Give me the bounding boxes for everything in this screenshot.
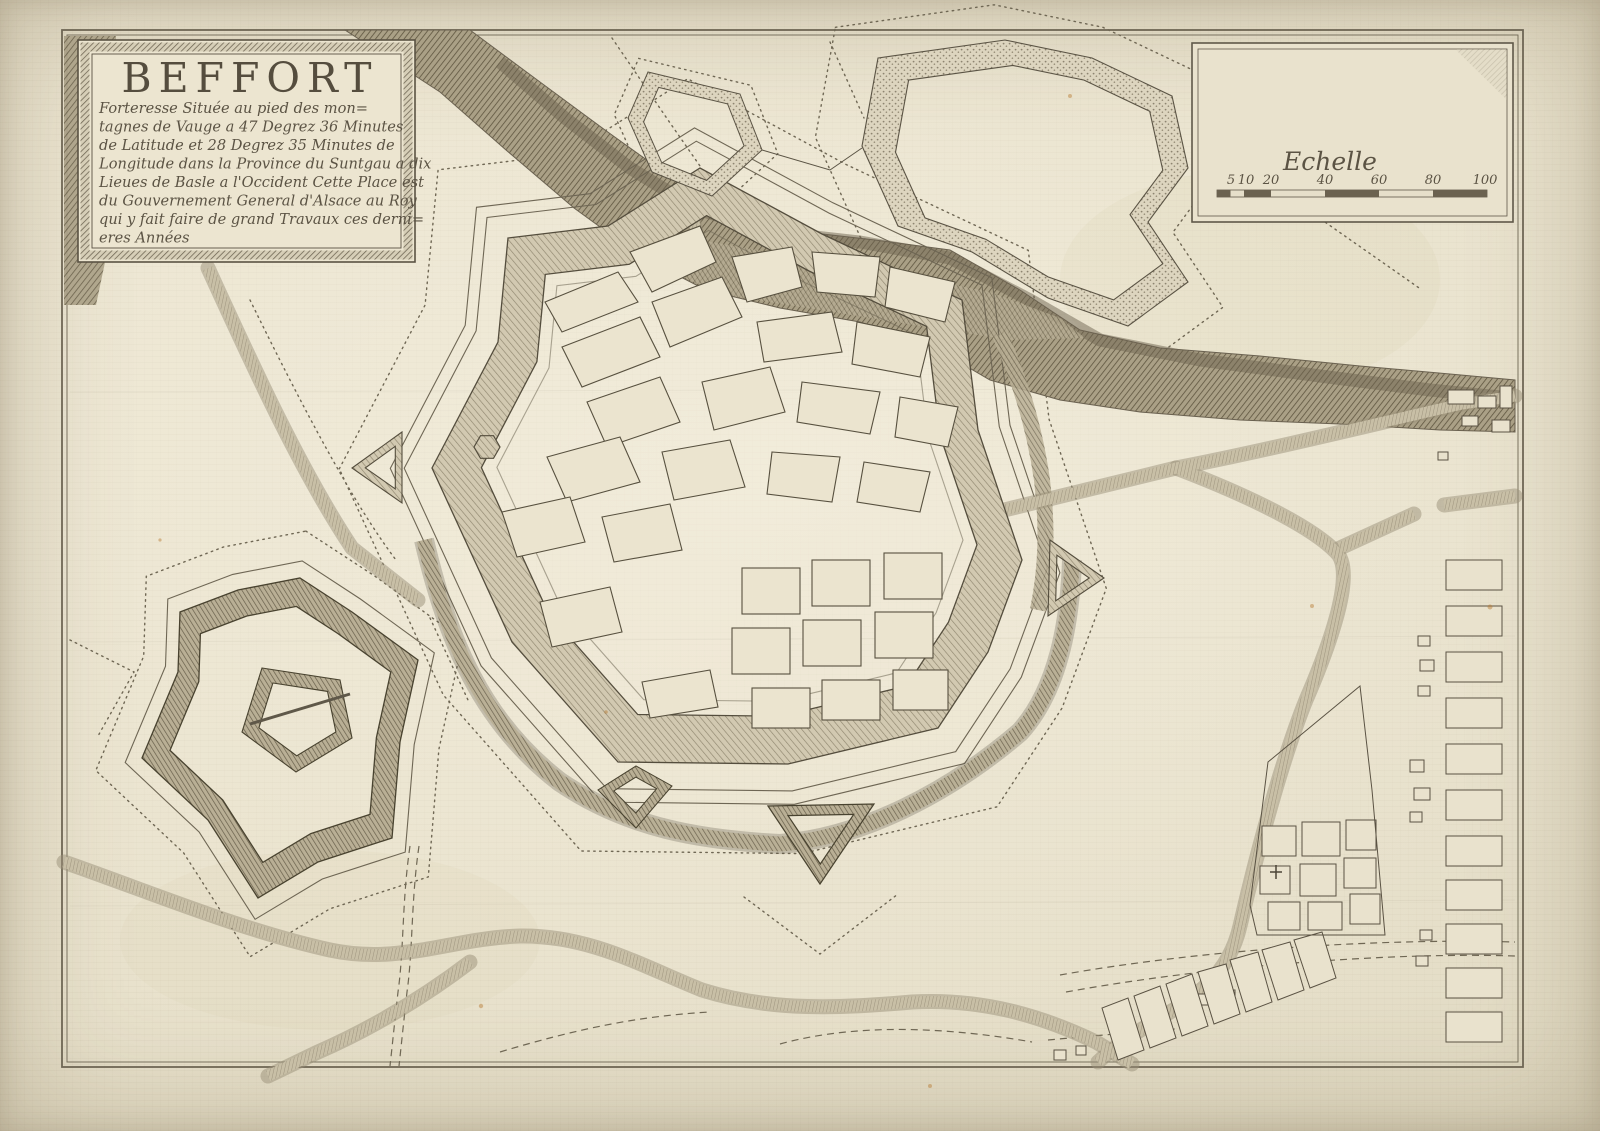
scale-tick: 40 (1316, 173, 1334, 188)
building-footprint (1500, 386, 1512, 408)
scale-tick: 60 (1371, 173, 1388, 188)
road-casing (208, 268, 418, 600)
dotted-path (70, 640, 134, 736)
garden-plot (1446, 560, 1502, 590)
cartouche-line: Longitude dans la Province du Suntgau a … (98, 156, 432, 173)
road (208, 268, 418, 600)
scale-box: Echelle 5 10 20 40 60 80 100 (1192, 43, 1513, 222)
cartouche-line: Forteresse Située au pied des mon= (98, 100, 368, 117)
engraved-map-page: BEFFORT Forteresse Située au pied des mo… (0, 0, 1600, 1131)
hex-redoubt (474, 436, 500, 459)
field-square (1054, 1050, 1066, 1060)
suburb-block (1300, 864, 1336, 896)
dashed-track (500, 1012, 710, 1052)
suburb-block (1308, 902, 1342, 930)
scale-tick: 20 (1262, 173, 1280, 188)
cartouche-line: de Latitude et 28 Degrez 35 Minutes de (99, 137, 395, 154)
map-title: BEFFORT (121, 54, 378, 102)
town-block-grid (752, 688, 810, 728)
field-square (1418, 686, 1430, 696)
town-block (812, 252, 880, 297)
building-footprint (1448, 390, 1474, 404)
foxing-speck (479, 1004, 483, 1008)
garden-plot (1446, 698, 1502, 728)
building-footprint (1492, 420, 1510, 432)
garden-plot (1446, 836, 1502, 866)
town-block-grid (875, 612, 933, 658)
foxing-speck (604, 710, 608, 714)
field-square (1076, 1046, 1086, 1055)
town-block-grid (803, 620, 861, 666)
ravelin-west-rampart (352, 432, 402, 503)
scale-bar-segment (1433, 190, 1487, 197)
title-cartouche: BEFFORT Forteresse Située au pied des mo… (78, 40, 432, 262)
foxing-speck (1310, 604, 1314, 608)
garden-plot (1446, 790, 1502, 820)
foxing-speck (158, 538, 161, 541)
garden-plot (1446, 744, 1502, 774)
scale-bar-segment (1325, 190, 1379, 197)
hornwork-connector-line (762, 148, 862, 170)
scale-tick: 80 (1425, 173, 1442, 188)
scale-bar (1217, 190, 1487, 197)
field-square (1420, 660, 1434, 671)
field-square (1416, 956, 1428, 966)
suburb-block (1262, 826, 1296, 856)
foxing-speck (1488, 605, 1493, 610)
town-block-grid (884, 553, 942, 599)
map-canvas: BEFFORT Forteresse Située au pied des mo… (0, 0, 1600, 1131)
suburb-block (1346, 820, 1376, 850)
town-block (757, 312, 842, 362)
garden-plot (1446, 924, 1502, 954)
dashed-track (780, 1029, 1032, 1044)
town-block-grid (893, 670, 948, 710)
field-square (1414, 788, 1430, 800)
cartouche-line: tagnes de Vauge a 47 Degrez 36 Minutes (99, 119, 403, 136)
town-block-grid (732, 628, 790, 674)
scale-label: Echelle (1282, 147, 1377, 176)
suburb-block (1302, 822, 1340, 856)
field-square (1418, 636, 1430, 646)
suburb-block (1268, 902, 1300, 930)
scale-tick: 10 (1238, 173, 1255, 188)
cartouche-line: qui y fait faire de grand Travaux ces de… (99, 211, 424, 228)
garden-plot (1446, 968, 1502, 998)
road (1340, 514, 1414, 548)
cartouche-line: eres Années (99, 230, 189, 247)
left-detached-fort-rampart (142, 578, 418, 898)
town-block (767, 452, 840, 502)
scale-bar-segment (1217, 190, 1231, 197)
dotted-path (250, 300, 396, 560)
building-footprint (1462, 416, 1478, 426)
town-block (562, 317, 660, 387)
town-block-grid (812, 560, 870, 606)
suburb-block (1260, 866, 1290, 894)
suburb-block (1344, 858, 1376, 888)
cartouche-line: du Gouvernement General d'Alsace au Roy (99, 193, 418, 210)
building-footprint (1478, 396, 1496, 408)
garden-plot (1446, 880, 1502, 910)
dotted-path (830, 42, 864, 118)
scale-tick: 100 (1473, 173, 1498, 188)
field-square (1420, 930, 1432, 940)
garden-plot (1446, 1012, 1502, 1042)
cartouche-line: Lieues de Basle a l'Occident Cette Place… (98, 174, 424, 191)
foxing-speck (928, 1084, 932, 1088)
scale-tick: 5 (1227, 173, 1235, 188)
town-block-grid (822, 680, 880, 720)
field-square (1410, 760, 1424, 772)
field-square (1410, 812, 1422, 822)
scale-bar-segment (1244, 190, 1271, 197)
town-block-grid (742, 568, 800, 614)
foxing-speck (1068, 94, 1072, 98)
garden-plot (1446, 606, 1502, 636)
garden-plot (1446, 652, 1502, 682)
suburb-block (1350, 894, 1380, 924)
field-square (1438, 452, 1448, 460)
